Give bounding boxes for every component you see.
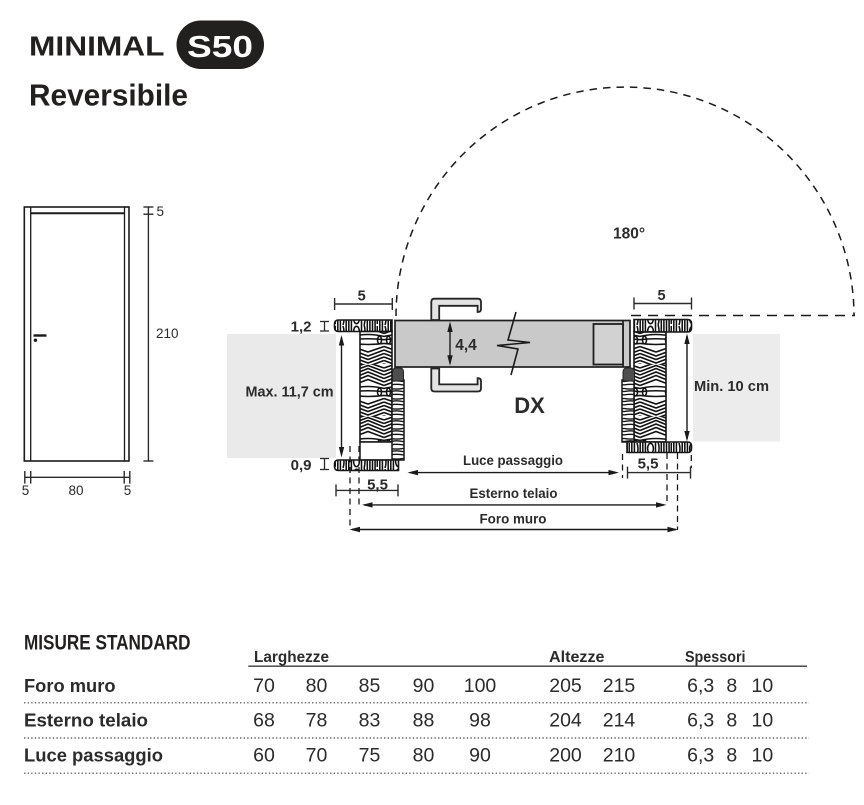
svg-text:8: 8 bbox=[726, 710, 737, 732]
svg-text:5: 5 bbox=[124, 483, 132, 498]
svg-text:8: 8 bbox=[726, 745, 737, 767]
svg-text:78: 78 bbox=[306, 710, 328, 732]
svg-text:70: 70 bbox=[306, 745, 328, 767]
svg-text:60: 60 bbox=[253, 745, 275, 767]
svg-text:10: 10 bbox=[752, 710, 774, 732]
svg-text:85: 85 bbox=[359, 675, 381, 697]
svg-text:210: 210 bbox=[603, 745, 636, 767]
svg-text:S50: S50 bbox=[187, 29, 253, 64]
svg-text:6,3: 6,3 bbox=[687, 745, 714, 767]
svg-text:5: 5 bbox=[358, 289, 366, 305]
svg-text:5: 5 bbox=[157, 204, 165, 219]
svg-text:Larghezze: Larghezze bbox=[254, 649, 329, 666]
svg-text:214: 214 bbox=[603, 710, 636, 732]
svg-text:Luce passaggio: Luce passaggio bbox=[463, 453, 563, 468]
svg-text:Luce passaggio: Luce passaggio bbox=[24, 745, 163, 766]
svg-text:5: 5 bbox=[22, 483, 30, 498]
svg-text:MISURE STANDARD: MISURE STANDARD bbox=[24, 630, 191, 654]
svg-text:Foro muro: Foro muro bbox=[24, 675, 116, 696]
svg-text:Altezze: Altezze bbox=[549, 649, 605, 666]
svg-text:80: 80 bbox=[68, 483, 83, 498]
svg-text:5: 5 bbox=[657, 288, 665, 304]
svg-text:68: 68 bbox=[253, 710, 275, 732]
svg-text:Min. 10 cm: Min. 10 cm bbox=[694, 378, 769, 395]
svg-text:80: 80 bbox=[306, 675, 328, 697]
svg-text:Esterno telaio: Esterno telaio bbox=[24, 710, 148, 731]
svg-text:98: 98 bbox=[469, 710, 491, 732]
svg-text:205: 205 bbox=[549, 675, 582, 697]
svg-text:180°: 180° bbox=[613, 226, 645, 243]
svg-text:5,5: 5,5 bbox=[638, 456, 659, 473]
svg-text:100: 100 bbox=[464, 675, 497, 697]
svg-text:Foro muro: Foro muro bbox=[480, 512, 547, 527]
svg-text:83: 83 bbox=[359, 710, 381, 732]
svg-text:215: 215 bbox=[603, 675, 636, 697]
svg-text:Reversibile: Reversibile bbox=[29, 77, 188, 112]
svg-text:MINIMAL: MINIMAL bbox=[29, 31, 165, 62]
svg-text:6,3: 6,3 bbox=[687, 710, 714, 732]
svg-text:88: 88 bbox=[413, 710, 435, 732]
svg-text:200: 200 bbox=[549, 745, 582, 767]
svg-text:DX: DX bbox=[514, 393, 545, 418]
svg-text:210: 210 bbox=[156, 326, 179, 341]
svg-text:75: 75 bbox=[359, 745, 381, 767]
svg-text:90: 90 bbox=[469, 745, 491, 767]
svg-text:8: 8 bbox=[726, 675, 737, 697]
svg-text:90: 90 bbox=[413, 675, 435, 697]
svg-text:Max. 11,7 cm: Max. 11,7 cm bbox=[246, 384, 334, 401]
svg-text:80: 80 bbox=[413, 745, 435, 767]
svg-text:6,3: 6,3 bbox=[687, 675, 714, 697]
svg-text:0,9: 0,9 bbox=[291, 457, 312, 474]
svg-text:204: 204 bbox=[549, 710, 582, 732]
svg-text:10: 10 bbox=[752, 745, 774, 767]
svg-text:Spessori: Spessori bbox=[685, 649, 746, 666]
svg-text:10: 10 bbox=[752, 675, 774, 697]
svg-text:4,4: 4,4 bbox=[455, 337, 477, 354]
svg-text:1,2: 1,2 bbox=[291, 319, 312, 336]
svg-text:70: 70 bbox=[253, 675, 275, 697]
svg-text:Esterno telaio: Esterno telaio bbox=[470, 486, 558, 501]
